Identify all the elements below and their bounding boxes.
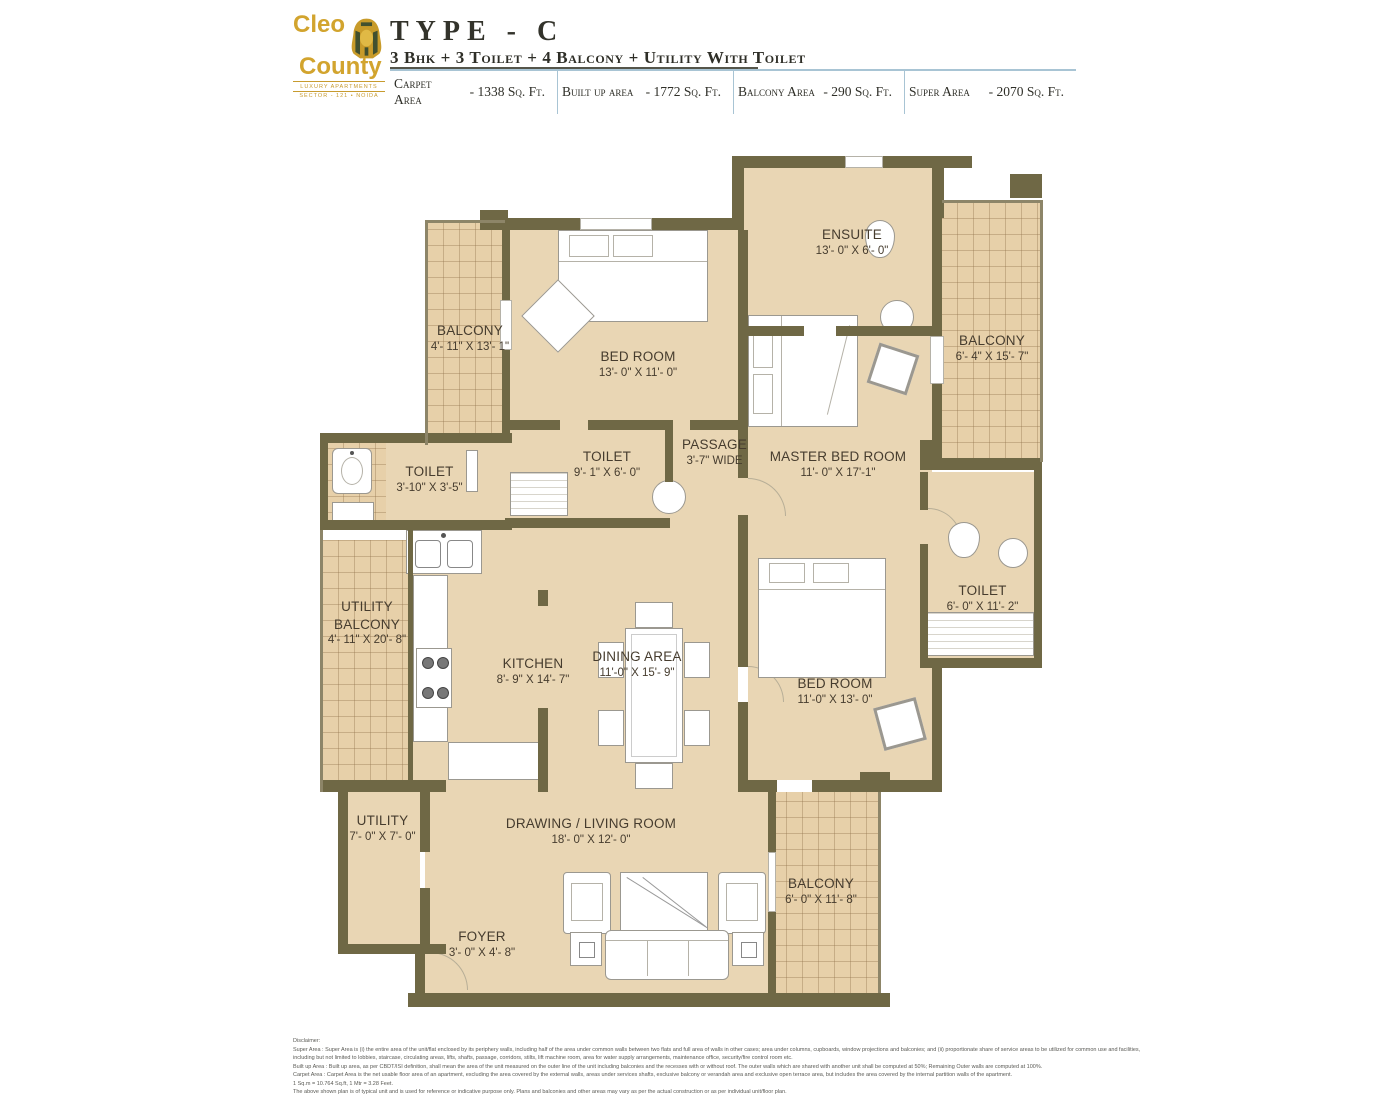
balcony-rail [425,220,505,223]
wall-segment [408,993,890,1007]
wall-segment [932,218,942,336]
wall-segment [1034,462,1042,668]
area-label: Balcony Area [738,84,815,100]
room-label-master-bedroom: MASTER BED ROOM 11'- 0" X 17'-1" [753,448,923,480]
wall-segment [320,780,446,792]
wall-segment [320,433,512,443]
area-cell-builtup: Built up area - 1772 Sq. Ft. [557,71,733,114]
room-label-toilet-right: TOILET 6'- 0" X 11'- 2" [930,582,1035,614]
wall-segment [320,520,512,530]
balcony-rail [942,200,1042,203]
pillow-icon [569,235,609,257]
wall-segment [920,658,1042,668]
wall-segment [538,708,548,792]
area-cell-balcony: Balcony Area - 290 Sq. Ft. [733,71,904,114]
logo: Cleo County LUXURY APARTMENTS SECTOR - 1… [293,14,385,100]
sofa-icon [605,930,729,980]
pillow-icon [769,563,805,583]
disclaimer-line: Disclaimer: [293,1037,1349,1046]
wall-segment [744,326,804,336]
wall-segment [932,156,944,218]
burner [437,657,449,669]
stove-icon [416,648,452,708]
lamp [741,942,757,958]
dining-chair-icon [635,602,673,628]
seat-cushion [571,883,603,921]
wall-segment [768,792,776,852]
wall-segment [738,515,748,667]
burner [422,657,434,669]
area-label: Super Area [909,84,970,100]
balcony-rail [320,530,323,792]
wall-segment [690,420,738,430]
wall-segment [932,668,942,780]
area-cell-super: Super Area - 2070 Sq. Ft. [904,71,1076,114]
wall-segment [502,350,510,433]
room-label-bedroom-right: BED ROOM 11'-0" X 13'- 0" [755,675,915,707]
disclaimer-line: Super Area : Super Area is (i) the entir… [293,1046,1349,1055]
seat-divider [647,940,648,976]
balcony-tile-top-right [942,203,1040,458]
bed-icon [758,558,886,678]
area-summary-bar: Carpet Area - 1338 Sq. Ft. Built up area… [390,69,1076,114]
wall-segment [505,420,560,430]
washbasin-icon [652,480,686,514]
window-icon [580,218,652,230]
disclaimer-line: The above shown plan is of typical unit … [293,1088,1349,1097]
side-table-lamp-icon [732,932,764,966]
wall-segment [415,950,425,993]
wall-segment [588,420,668,430]
room-label-bedroom-top: BED ROOM 13'- 0" X 11'- 0" [558,348,718,380]
disclaimer-line: Built up Area : Built up area, as per CB… [293,1063,1349,1072]
disclaimer-line: Carpet Area : Carpet Area is the net usa… [293,1071,1349,1080]
wall-segment [738,702,748,792]
wall-segment [768,912,776,993]
logo-text-county: County [299,56,385,78]
pillow-icon [813,563,849,583]
blanket-line [559,261,707,262]
tv-unit-icon [620,872,708,934]
room-label-passage: PASSAGE 3'-7" WIDE [672,436,757,468]
pillow-icon [613,235,653,257]
page-title: TYPE - C [390,16,564,48]
washbasin-icon [998,538,1028,568]
room-label-balcony-top-left: BALCONY 4'- 11" X 13'- 1" [410,322,530,354]
kitchen-sink-icon [406,530,482,574]
room-label-utility-balcony: UTILITY BALCONY 4'- 11" X 20'- 8" [324,598,410,648]
room-label-utility: UTILITY 7'- 0" X 7'- 0" [340,812,425,844]
area-value: - 290 Sq. Ft. [815,84,892,100]
area-cell-carpet: Carpet Area - 1338 Sq. Ft. [390,71,557,114]
dining-chair-icon [684,710,710,746]
wall-segment [538,590,548,606]
room-label-toilet-left: TOILET 3'-10" X 3'-5" [377,463,482,495]
wall-segment [836,326,932,336]
blanket-fold-line [827,325,850,415]
disclaimer-line: 1 Sq.m = 10.764 Sq.ft, 1 Mtr = 3.28 Feet… [293,1080,1349,1089]
washbasin-icon [332,448,372,494]
area-label: Carpet Area [394,76,462,108]
area-value: - 2070 Sq. Ft. [981,84,1064,100]
basin-bowl [341,457,363,485]
wall-segment [502,230,510,300]
window-icon [845,156,883,168]
area-value: - 1772 Sq. Ft. [638,84,721,100]
wall-segment [920,544,928,662]
balcony-rail [878,792,881,993]
room-label-balcony-top-right: BALCONY 6'- 4" X 15'- 7" [938,332,1046,364]
room-label-balcony-bottom: BALCONY 6'- 0" X 11'- 8" [765,875,877,907]
room-label-foyer: FOYER 3'- 0" X 4'- 8" [426,928,538,960]
dining-chair-icon [635,763,673,789]
wall-corner-block [1010,174,1042,198]
area-label: Built up area [562,84,633,100]
room-label-ensuite: ENSUITE 13'- 0" X 6'- 0" [777,226,927,258]
wall-corner-block [920,440,942,462]
lamp [579,942,595,958]
room-label-living: DRAWING / LIVING ROOM 18'- 0" X 12'- 0" [466,815,716,847]
page-subtitle: 3 Bhk + 3 Toilet + 4 Balcony + Utility W… [390,48,806,68]
side-table-lamp-icon [570,932,602,966]
disclaimer-line: including but not limited to lobbies, st… [293,1054,1349,1063]
burner [437,687,449,699]
wall-segment [320,433,328,530]
diagonal-line [642,877,706,927]
floor-plan-page: Cleo County LUXURY APARTMENTS SECTOR - 1… [0,0,1375,1100]
armchair-icon [563,872,611,934]
faucet-dot [441,533,446,538]
burner [422,687,434,699]
room-label-toilet-mid: TOILET 9'- 1" X 6'- 0" [542,448,672,480]
wall-segment [502,218,580,230]
room-label-dining: DINING AREA 11'-0" X 15'- 9" [578,648,696,680]
sofa-back-line [606,940,728,941]
disclaimer: Disclaimer: Super Area : Super Area is (… [293,1037,1349,1097]
seat-divider [688,940,689,976]
seat-cushion [726,883,758,921]
logo-text-cleo: Cleo [293,14,345,36]
faucet-dot [350,451,354,455]
balcony-tile-utility [323,540,408,780]
kitchen-counter [448,742,540,780]
diagonal-line [626,877,707,928]
area-value: - 1338 Sq. Ft. [462,84,545,100]
wall-segment [408,530,413,780]
sink-bowl [447,540,473,568]
wall-segment [505,518,670,528]
armchair-icon [718,872,766,934]
pillow-icon [753,374,773,414]
shower-tray-icon [926,612,1034,656]
balcony-rail [1040,200,1043,462]
logo-tagline: LUXURY APARTMENTS [293,81,385,91]
logo-location: SECTOR - 121 • NOIDA [293,91,385,100]
wall-segment [745,780,777,792]
wall-segment [652,218,744,230]
wall-corner-block [860,772,890,792]
sink-bowl [415,540,441,568]
dining-chair-icon [598,710,624,746]
floor-plan: BALCONY 4'- 11" X 13'- 1" BED ROOM 13'- … [320,150,1080,1020]
blanket-line [759,589,885,590]
